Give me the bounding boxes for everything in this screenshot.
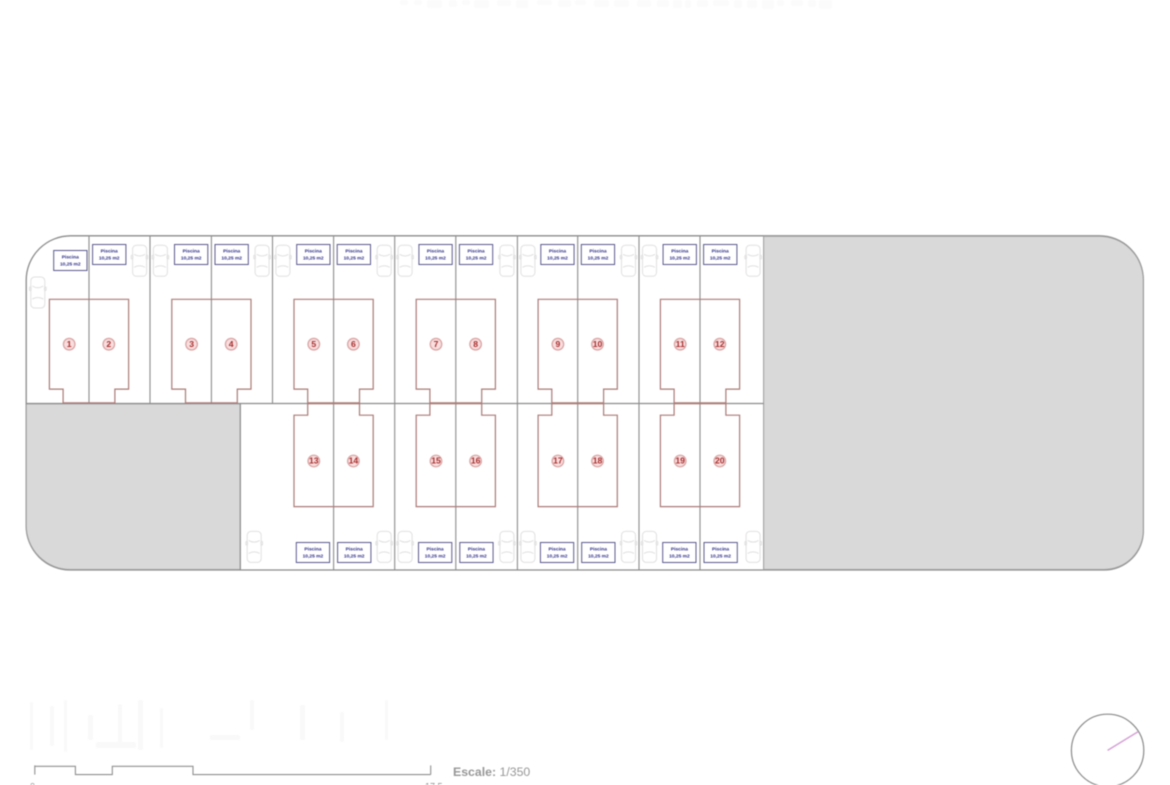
svg-text:20: 20 <box>715 456 725 466</box>
svg-text:Piscina: Piscina <box>589 249 606 255</box>
svg-text:10,25 m2: 10,25 m2 <box>466 553 487 559</box>
svg-text:Piscina: Piscina <box>671 249 688 255</box>
svg-text:10,25 m2: 10,25 m2 <box>181 255 202 261</box>
svg-text:10,25 m2: 10,25 m2 <box>466 255 487 261</box>
svg-text:12: 12 <box>715 339 725 349</box>
svg-text:Piscina: Piscina <box>346 547 363 553</box>
svg-text:7: 7 <box>434 339 439 349</box>
svg-text:Piscina: Piscina <box>345 249 362 255</box>
svg-text:10,25 m2: 10,25 m2 <box>547 553 568 559</box>
svg-text:8: 8 <box>473 339 478 349</box>
svg-text:10,25 m2: 10,25 m2 <box>669 553 690 559</box>
svg-text:2: 2 <box>106 339 111 349</box>
svg-text:Piscina: Piscina <box>223 249 240 255</box>
svg-text:10,25 m2: 10,25 m2 <box>221 255 242 261</box>
svg-text:3: 3 <box>189 339 194 349</box>
svg-text:Piscina: Piscina <box>427 249 444 255</box>
svg-text:17: 17 <box>553 456 563 466</box>
svg-text:10,25 m2: 10,25 m2 <box>99 255 120 261</box>
svg-text:6: 6 <box>351 339 356 349</box>
svg-text:Piscina: Piscina <box>468 249 485 255</box>
svg-text:9: 9 <box>556 339 561 349</box>
svg-text:Piscina: Piscina <box>549 249 566 255</box>
svg-text:1: 1 <box>67 339 72 349</box>
svg-text:15: 15 <box>431 456 441 466</box>
svg-text:10,25 m2: 10,25 m2 <box>669 255 690 261</box>
svg-text:0: 0 <box>30 782 35 785</box>
svg-text:Piscina: Piscina <box>304 547 321 553</box>
svg-text:10,25 m2: 10,25 m2 <box>344 255 365 261</box>
svg-text:Piscina: Piscina <box>101 249 118 255</box>
svg-text:10,25 m2: 10,25 m2 <box>303 255 324 261</box>
svg-text:17,5: 17,5 <box>425 782 443 785</box>
svg-text:10: 10 <box>593 339 603 349</box>
svg-text:Piscina: Piscina <box>305 249 322 255</box>
svg-text:13: 13 <box>309 456 319 466</box>
svg-text:Piscina: Piscina <box>549 547 566 553</box>
svg-text:19: 19 <box>675 456 685 466</box>
svg-text:10,25 m2: 10,25 m2 <box>60 261 81 267</box>
svg-text:10,25 m2: 10,25 m2 <box>425 553 446 559</box>
svg-text:10,25 m2: 10,25 m2 <box>588 553 609 559</box>
svg-text:Piscina: Piscina <box>590 547 607 553</box>
svg-text:4: 4 <box>229 339 234 349</box>
svg-text:Piscina: Piscina <box>62 255 79 261</box>
svg-text:Piscina: Piscina <box>712 249 729 255</box>
svg-text:5: 5 <box>311 339 316 349</box>
svg-text:Piscina: Piscina <box>427 547 444 553</box>
svg-text:10,25 m2: 10,25 m2 <box>547 255 568 261</box>
svg-text:10,25 m2: 10,25 m2 <box>710 553 731 559</box>
svg-text:Piscina: Piscina <box>712 547 729 553</box>
svg-text:10,25 m2: 10,25 m2 <box>425 255 446 261</box>
svg-text:Piscina: Piscina <box>671 547 688 553</box>
svg-text:14: 14 <box>349 456 359 466</box>
svg-text:10,25 m2: 10,25 m2 <box>710 255 731 261</box>
svg-text:10,25 m2: 10,25 m2 <box>344 553 365 559</box>
svg-text:11: 11 <box>676 339 685 349</box>
svg-text:Piscina: Piscina <box>468 547 485 553</box>
svg-text:Piscina: Piscina <box>183 249 200 255</box>
svg-text:18: 18 <box>593 456 603 466</box>
svg-text:Escale: 1/350: Escale: 1/350 <box>453 765 530 779</box>
svg-text:10,25 m2: 10,25 m2 <box>303 553 324 559</box>
svg-text:16: 16 <box>471 456 481 466</box>
svg-text:10,25 m2: 10,25 m2 <box>588 255 609 261</box>
